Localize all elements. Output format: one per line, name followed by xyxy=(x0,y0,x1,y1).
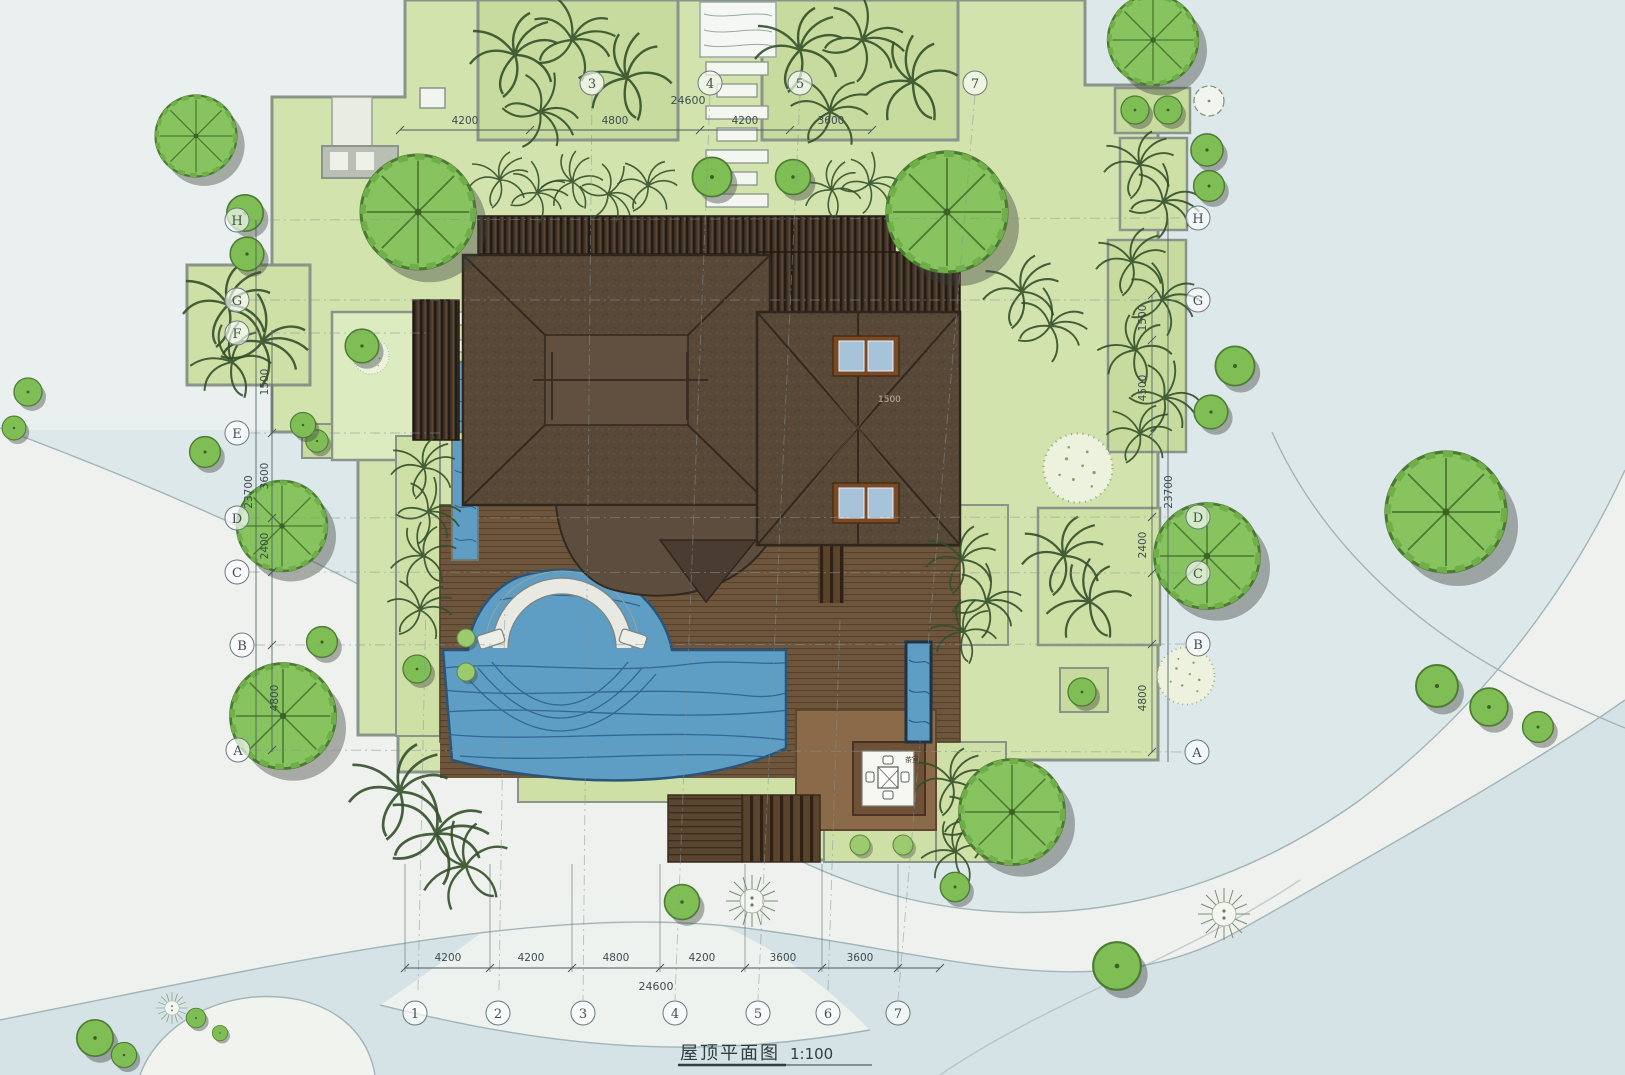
roof-plan-drawing: 茶室 xyxy=(0,0,1625,1075)
drawing-title: 屋顶平面图 xyxy=(680,1043,780,1064)
grid-left-G: G xyxy=(232,294,242,309)
dim-bottom-2: 4200 xyxy=(518,952,545,964)
dim-left-3: 2400 xyxy=(259,533,271,560)
grid-left-B: B xyxy=(237,639,247,654)
dim-right-4: 4800 xyxy=(1137,685,1149,712)
grid-right-H: H xyxy=(1192,212,1203,227)
east-hip-roof: 1500 xyxy=(757,312,960,545)
grid-bottom-4: 4 xyxy=(671,1007,679,1022)
pergola-roof-top xyxy=(478,216,895,254)
grid-bottom-6: 6 xyxy=(824,1007,832,1022)
grid-left-F: F xyxy=(232,327,241,342)
dim-bottom-1: 4200 xyxy=(435,952,462,964)
tea-room: 茶室 xyxy=(853,742,925,815)
grid-top-4: 4 xyxy=(706,77,714,92)
grid-bottom-1: 1 xyxy=(411,1007,419,1022)
left-palm-planter xyxy=(187,265,310,385)
patio-lawn-strip xyxy=(824,830,936,862)
dim-right-3: 2400 xyxy=(1137,532,1149,559)
grid-bottom-2: 2 xyxy=(494,1007,502,1022)
top-planter-right xyxy=(762,0,958,140)
grid-left-C: C xyxy=(232,566,242,581)
dim-bottom-4: 4200 xyxy=(689,952,716,964)
grid-top-3: 3 xyxy=(588,77,596,92)
topright-planter-2 xyxy=(1120,138,1187,230)
grid-top-7: 7 xyxy=(971,77,979,92)
grid-right-B: B xyxy=(1193,638,1203,653)
right-garden xyxy=(1038,508,1160,645)
dim-bottom-5: 3600 xyxy=(770,952,797,964)
south-deck-platform xyxy=(668,795,742,862)
dim-left-1: 1500 xyxy=(259,369,271,396)
dim-top-4: 3600 xyxy=(818,115,845,127)
dim-bottom-3: 4800 xyxy=(603,952,630,964)
grid-right-C: C xyxy=(1193,567,1203,582)
top-planter-left xyxy=(478,0,678,140)
grid-bottom-5: 5 xyxy=(754,1007,762,1022)
dim-top-2: 4800 xyxy=(602,115,629,127)
deck-steps-east xyxy=(818,545,844,603)
dim-top-1: 4200 xyxy=(452,115,479,127)
grid-right-A: A xyxy=(1191,746,1202,761)
dim-right-2: 4500 xyxy=(1137,375,1149,402)
tea-room-label: 茶室 xyxy=(905,755,919,764)
skylight-upper xyxy=(833,336,899,376)
dim-bottom-6: 3600 xyxy=(847,952,874,964)
dim-top-3: 4200 xyxy=(732,115,759,127)
pergola-roof-west xyxy=(413,300,459,440)
grid-bottom-3: 3 xyxy=(579,1007,587,1022)
grid-right-D: D xyxy=(1193,511,1203,526)
dim-right-1: 1500 xyxy=(1137,305,1149,332)
roof-plan-canvas: 茶室 xyxy=(0,0,1625,1075)
west-planter-strip xyxy=(396,436,440,736)
dim-bottom-total: 24600 xyxy=(639,980,674,993)
dim-left-4: 4800 xyxy=(269,685,281,712)
grid-left-A: A xyxy=(232,744,243,759)
roof-dimension-label: 1500 xyxy=(878,395,901,405)
dim-right-overall: 23700 xyxy=(1163,475,1175,508)
stipple-bush xyxy=(1044,434,1113,503)
south-stairs xyxy=(742,795,820,862)
grid-bottom-7: 7 xyxy=(894,1007,902,1022)
grid-left-E: E xyxy=(232,427,242,442)
grid-top-5: 5 xyxy=(796,77,804,92)
grid-left-H: H xyxy=(231,214,242,229)
grid-right-G: G xyxy=(1193,294,1203,309)
dim-left-2: 3600 xyxy=(259,463,271,490)
drawing-scale: 1:100 xyxy=(790,1045,833,1063)
dim-top-total: 24600 xyxy=(671,94,706,107)
skylight-lower xyxy=(833,483,899,523)
dim-left-overall: 23700 xyxy=(243,475,255,508)
grid-left-D: D xyxy=(232,512,242,527)
